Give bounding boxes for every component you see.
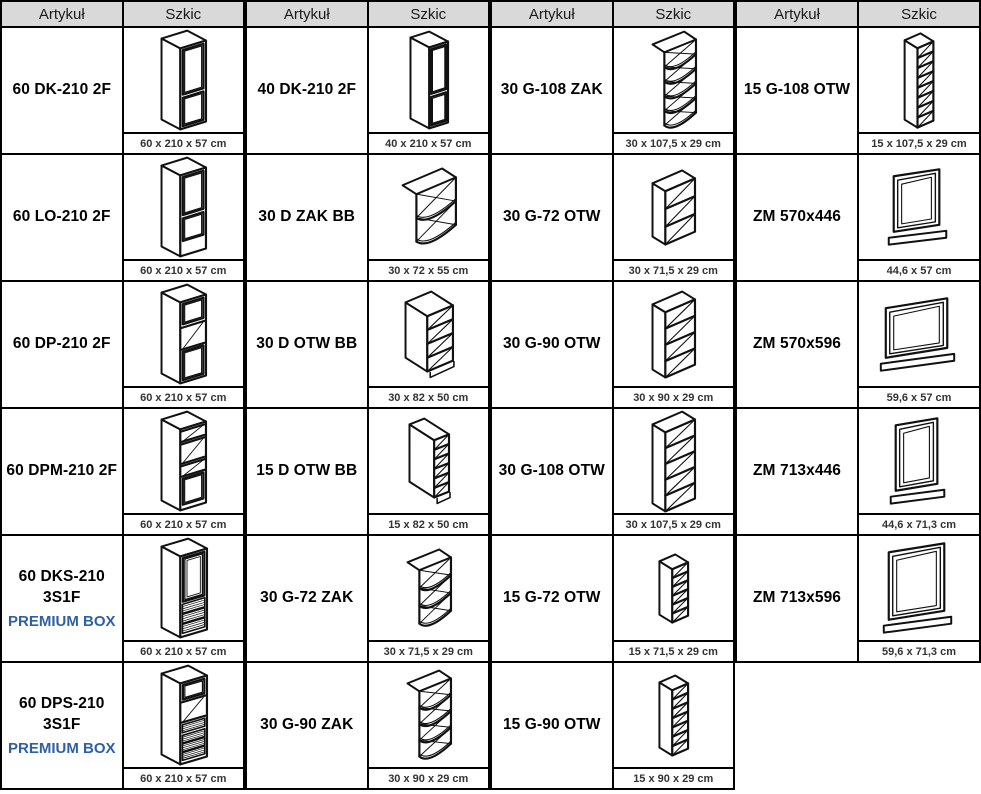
article-code: 30 G-72 OTW <box>503 207 601 228</box>
sketch-cell: 60 x 210 x 57 cm <box>124 663 244 788</box>
catalog-column-group: ArtykułSzkic40 DK-210 2F40 x 210 x 57 cm… <box>245 0 490 790</box>
article-cell: 60 DKS-210 3S1FPREMIUM BOX <box>2 536 122 661</box>
dimensions-label: 30 x 71,5 x 29 cm <box>369 640 489 661</box>
cabinet-sketch <box>369 663 489 767</box>
dimensions-label: 30 x 90 x 29 cm <box>369 767 489 788</box>
article-code: 40 DK-210 2F <box>257 80 356 101</box>
column-header-szkic: Szkic <box>614 2 734 26</box>
dimensions-label: 44,6 x 57 cm <box>859 259 979 280</box>
sketch-area <box>614 28 734 132</box>
article-cell: 30 D OTW BB <box>247 282 367 407</box>
article-code: 30 G-90 ZAK <box>260 715 353 736</box>
sketch-area <box>124 28 244 132</box>
cabinet-sketch <box>614 663 734 767</box>
column-header-szkic: Szkic <box>124 2 244 26</box>
article-code: ZM 713x596 <box>753 588 841 609</box>
sketch-cell: 30 x 71,5 x 29 cm <box>614 155 734 280</box>
catalog-column-group: ArtykułSzkic30 G-108 ZAK30 x 107,5 x 29 … <box>490 0 735 790</box>
cabinet-sketch <box>369 155 489 259</box>
cabinet-sketch <box>124 28 244 132</box>
dimensions-label: 60 x 210 x 57 cm <box>124 259 244 280</box>
article-code: 30 D OTW BB <box>256 334 357 355</box>
cabinet-sketch <box>124 155 244 259</box>
article-code: 30 G-108 OTW <box>499 461 605 482</box>
sketch-area <box>124 155 244 259</box>
sketch-area <box>614 536 734 640</box>
article-code: ZM 570x446 <box>753 207 841 228</box>
cabinet-sketch <box>614 28 734 132</box>
article-cell: 60 DPM-210 2F <box>2 409 122 534</box>
column-header-artykul: Artykuł <box>737 2 857 26</box>
dimensions-label: 60 x 210 x 57 cm <box>124 132 244 153</box>
cabinet-sketch <box>614 409 734 513</box>
dimensions-label: 30 x 72 x 55 cm <box>369 259 489 280</box>
article-cell: 30 G-90 ZAK <box>247 663 367 788</box>
dimensions-label: 30 x 107,5 x 29 cm <box>614 132 734 153</box>
column-header-artykul: Artykuł <box>492 2 612 26</box>
dimensions-label: 15 x 107,5 x 29 cm <box>859 132 979 153</box>
sketch-cell: 30 x 107,5 x 29 cm <box>614 409 734 534</box>
article-code: ZM 570x596 <box>753 334 841 355</box>
cabinet-sketch <box>369 409 489 513</box>
sketch-cell: 60 x 210 x 57 cm <box>124 409 244 534</box>
article-cell: 30 G-72 ZAK <box>247 536 367 661</box>
article-cell: ZM 713x446 <box>737 409 857 534</box>
sketch-area <box>124 663 244 767</box>
article-code: 60 LO-210 2F <box>13 207 111 228</box>
article-code: 15 D OTW BB <box>256 461 357 482</box>
dimensions-label: 59,6 x 71,3 cm <box>859 640 979 661</box>
article-cell: 60 DP-210 2F <box>2 282 122 407</box>
sketch-area <box>859 536 979 640</box>
premium-box-label: PREMIUM BOX <box>8 613 116 630</box>
sketch-cell: 59,6 x 71,3 cm <box>859 536 979 661</box>
article-code: 30 G-108 ZAK <box>501 80 603 101</box>
dimensions-label: 60 x 210 x 57 cm <box>124 767 244 788</box>
article-cell: ZM 713x596 <box>737 536 857 661</box>
article-cell: 60 DPS-210 3S1FPREMIUM BOX <box>2 663 122 788</box>
sketch-area <box>369 409 489 513</box>
sketch-cell: 30 x 72 x 55 cm <box>369 155 489 280</box>
article-code: 30 G-90 OTW <box>503 334 601 355</box>
sketch-area <box>614 282 734 386</box>
cabinet-sketch <box>124 282 244 386</box>
sketch-area <box>369 155 489 259</box>
sketch-cell: 40 x 210 x 57 cm <box>369 28 489 153</box>
cabinet-sketch <box>369 282 489 386</box>
article-code: 15 G-72 OTW <box>503 588 601 609</box>
sketch-cell: 15 x 71,5 x 29 cm <box>614 536 734 661</box>
dimensions-label: 60 x 210 x 57 cm <box>124 513 244 534</box>
sketch-cell: 60 x 210 x 57 cm <box>124 155 244 280</box>
sketch-cell: 30 x 107,5 x 29 cm <box>614 28 734 153</box>
sketch-area <box>369 663 489 767</box>
article-cell: 15 G-108 OTW <box>737 28 857 153</box>
article-cell: 60 LO-210 2F <box>2 155 122 280</box>
dimensions-label: 40 x 210 x 57 cm <box>369 132 489 153</box>
article-code: ZM 713x446 <box>753 461 841 482</box>
sketch-area <box>124 282 244 386</box>
sketch-area <box>859 282 979 386</box>
article-cell: ZM 570x446 <box>737 155 857 280</box>
article-cell: 30 G-72 OTW <box>492 155 612 280</box>
article-cell: 15 G-90 OTW <box>492 663 612 788</box>
sketch-cell: 30 x 90 x 29 cm <box>369 663 489 788</box>
cabinet-sketch <box>124 663 244 767</box>
column-header-artykul: Artykuł <box>2 2 122 26</box>
article-cell: 30 D ZAK BB <box>247 155 367 280</box>
article-code: 60 DP-210 2F <box>13 334 111 355</box>
sketch-area <box>369 536 489 640</box>
article-code: 15 G-108 OTW <box>744 80 850 101</box>
premium-box-label: PREMIUM BOX <box>8 740 116 757</box>
sketch-area <box>859 155 979 259</box>
article-code: 60 DPM-210 2F <box>6 461 117 482</box>
sketch-cell: 30 x 82 x 50 cm <box>369 282 489 407</box>
sketch-area <box>124 409 244 513</box>
cabinet-sketch <box>859 28 979 132</box>
article-cell: 30 G-90 OTW <box>492 282 612 407</box>
cabinet-sketch <box>859 155 979 259</box>
sketch-area <box>859 28 979 132</box>
cabinet-sketch <box>124 536 244 640</box>
article-code: 60 DPS-210 3S1F <box>4 694 120 736</box>
sketch-cell: 30 x 71,5 x 29 cm <box>369 536 489 661</box>
sketch-area <box>859 409 979 513</box>
dimensions-label: 60 x 210 x 57 cm <box>124 386 244 407</box>
sketch-area <box>369 28 489 132</box>
article-cell: 30 G-108 OTW <box>492 409 612 534</box>
cabinet-sketch <box>124 409 244 513</box>
article-cell: ZM 570x596 <box>737 282 857 407</box>
dimensions-label: 30 x 107,5 x 29 cm <box>614 513 734 534</box>
dimensions-label: 15 x 82 x 50 cm <box>369 513 489 534</box>
article-code: 30 D ZAK BB <box>258 207 355 228</box>
sketch-cell: 44,6 x 71,3 cm <box>859 409 979 534</box>
column-header-szkic: Szkic <box>369 2 489 26</box>
catalog-column-group: ArtykułSzkic15 G-108 OTW15 x 107,5 x 29 … <box>735 0 981 663</box>
cabinet-sketch <box>614 536 734 640</box>
sketch-area <box>614 155 734 259</box>
article-cell: 30 G-108 ZAK <box>492 28 612 153</box>
cabinet-sketch <box>614 155 734 259</box>
catalog-table: ArtykułSzkic60 DK-210 2F60 x 210 x 57 cm… <box>0 0 981 790</box>
column-header-artykul: Artykuł <box>247 2 367 26</box>
sketch-cell: 60 x 210 x 57 cm <box>124 28 244 153</box>
dimensions-label: 59,6 x 57 cm <box>859 386 979 407</box>
cabinet-sketch <box>859 282 979 386</box>
dimensions-label: 60 x 210 x 57 cm <box>124 640 244 661</box>
dimensions-label: 15 x 90 x 29 cm <box>614 767 734 788</box>
sketch-cell: 15 x 107,5 x 29 cm <box>859 28 979 153</box>
article-cell: 15 G-72 OTW <box>492 536 612 661</box>
sketch-cell: 59,6 x 57 cm <box>859 282 979 407</box>
cabinet-sketch <box>369 536 489 640</box>
sketch-cell: 30 x 90 x 29 cm <box>614 282 734 407</box>
dimensions-label: 44,6 x 71,3 cm <box>859 513 979 534</box>
article-cell: 60 DK-210 2F <box>2 28 122 153</box>
sketch-area <box>369 282 489 386</box>
cabinet-sketch <box>859 409 979 513</box>
article-code: 15 G-90 OTW <box>503 715 601 736</box>
sketch-cell: 44,6 x 57 cm <box>859 155 979 280</box>
sketch-area <box>614 409 734 513</box>
catalog-column-group: ArtykułSzkic60 DK-210 2F60 x 210 x 57 cm… <box>0 0 245 790</box>
dimensions-label: 30 x 82 x 50 cm <box>369 386 489 407</box>
sketch-cell: 15 x 82 x 50 cm <box>369 409 489 534</box>
article-code: 60 DK-210 2F <box>12 80 111 101</box>
sketch-cell: 60 x 210 x 57 cm <box>124 282 244 407</box>
cabinet-sketch <box>614 282 734 386</box>
dimensions-label: 30 x 90 x 29 cm <box>614 386 734 407</box>
sketch-cell: 60 x 210 x 57 cm <box>124 536 244 661</box>
sketch-area <box>124 536 244 640</box>
dimensions-label: 30 x 71,5 x 29 cm <box>614 259 734 280</box>
article-code: 30 G-72 ZAK <box>260 588 353 609</box>
dimensions-label: 15 x 71,5 x 29 cm <box>614 640 734 661</box>
column-header-szkic: Szkic <box>859 2 979 26</box>
article-code: 60 DKS-210 3S1F <box>4 567 120 609</box>
cabinet-sketch <box>369 28 489 132</box>
cabinet-sketch <box>859 536 979 640</box>
article-cell: 15 D OTW BB <box>247 409 367 534</box>
sketch-area <box>614 663 734 767</box>
sketch-cell: 15 x 90 x 29 cm <box>614 663 734 788</box>
article-cell: 40 DK-210 2F <box>247 28 367 153</box>
